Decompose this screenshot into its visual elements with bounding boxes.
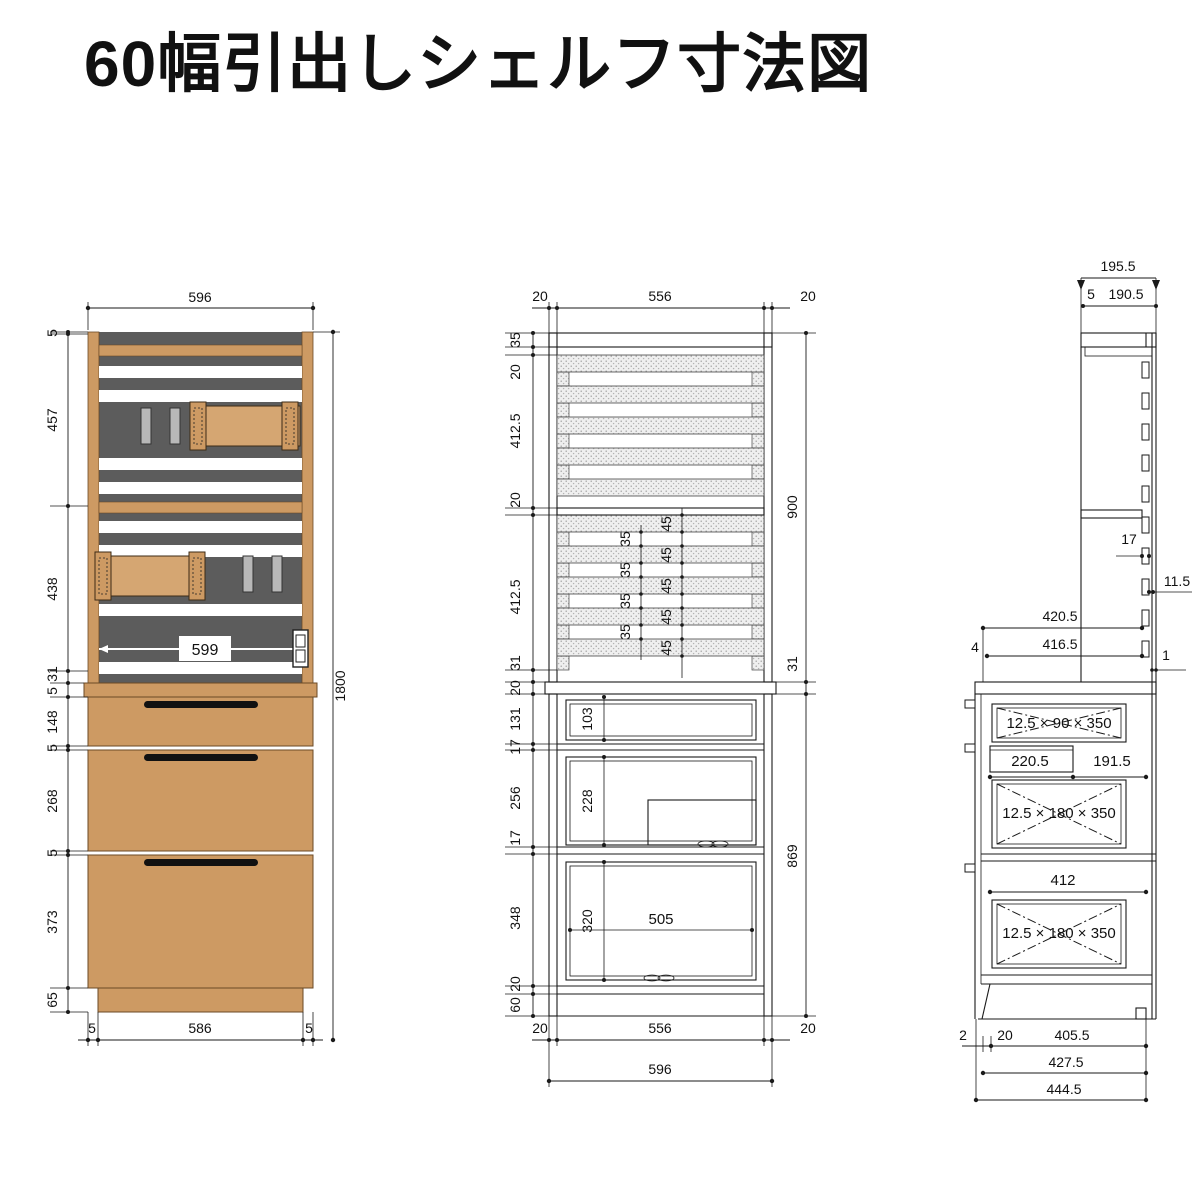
dim-drawer-internals: 103 228 320 505	[568, 695, 754, 982]
drawer-handle	[144, 701, 258, 708]
dim-label: 412.5	[507, 413, 523, 448]
dim-slat-thickness: 17 11.5	[1116, 531, 1192, 594]
dim-label: 869	[784, 844, 800, 868]
dim-label: 17	[1121, 531, 1137, 547]
dim-label: 45	[658, 640, 674, 656]
base-kick	[98, 988, 303, 1012]
dim-label: 148	[44, 710, 60, 734]
dim-label: 320	[579, 909, 595, 933]
dim-label: 20	[532, 288, 548, 304]
dim-label: 20	[800, 1020, 816, 1036]
drawer-cabinet	[84, 683, 317, 1012]
slat-panel: 599	[88, 332, 313, 683]
dim-label: 20	[532, 1020, 548, 1036]
dim-label: 35	[617, 531, 633, 547]
counter-side	[975, 682, 1156, 694]
dim-label: 35	[617, 562, 633, 578]
dim-label: 5	[88, 1020, 96, 1036]
dim-label: 35	[617, 593, 633, 609]
dim-upper-depth: 420.5 416.5 4 1	[971, 608, 1186, 682]
dim-label: 31	[784, 656, 800, 672]
dim-label: 438	[44, 577, 60, 601]
dim-label: 45	[658, 609, 674, 625]
dimension-diagram: 60幅引出しシェルフ寸法図 596	[0, 0, 1200, 1200]
dim-label: 191.5	[1093, 753, 1131, 770]
dim-label: 373	[44, 910, 60, 934]
dim-top-chain: 20 556 20	[532, 288, 816, 333]
dim-label: 5	[305, 1020, 313, 1036]
dim-label: 457	[44, 408, 60, 432]
board-label: 12.5 × 180 × 350	[1002, 805, 1115, 822]
dim-label: 65	[44, 992, 60, 1008]
dim-label: 5	[44, 849, 60, 857]
drawer-front-tabs	[965, 700, 975, 872]
dim-label: 35	[507, 332, 523, 348]
shelf-box-upper	[190, 402, 300, 450]
shelf-box-lower	[95, 552, 205, 600]
dim-label: 195.5	[1100, 258, 1135, 274]
dim-label: 45	[658, 547, 674, 563]
dim-label: 405.5	[1054, 1027, 1089, 1043]
dim-label: 11.5	[1164, 573, 1190, 589]
dim-label: 20	[997, 1027, 1013, 1043]
dim-label: 228	[579, 789, 595, 813]
dim-label: 45	[658, 516, 674, 532]
dim-front-right-chain: 900 31 869	[772, 331, 816, 1018]
mid-shelf	[1081, 510, 1142, 518]
dim-label: 900	[784, 495, 800, 519]
dim-label: 599	[192, 642, 219, 659]
dim-label: 5	[44, 744, 60, 752]
dim-label: 31	[44, 666, 60, 682]
dim-label: 444.5	[1046, 1081, 1081, 1097]
dim-label: 596	[648, 1061, 672, 1077]
dim-label: 60	[507, 997, 523, 1013]
dim-left-chain: 5 457 438 31 5 148 5 268 5 373 65	[44, 329, 88, 1014]
dim-label: 420.5	[1042, 608, 1077, 624]
dim-label: 4	[971, 639, 979, 655]
dim-label: 45	[658, 578, 674, 594]
drawer-handle	[144, 859, 258, 866]
drawer-handle	[144, 754, 258, 761]
dim-label: 256	[507, 786, 523, 810]
dim-label: 596	[188, 289, 212, 305]
dim-label: 2	[959, 1027, 967, 1043]
dim-label: 20	[507, 492, 523, 508]
dim-label: 20	[507, 364, 523, 380]
board-label: 12.5 × 90 × 350	[1006, 715, 1111, 732]
dim-label: 190.5	[1108, 286, 1143, 302]
side-line-view: 195.5 5 190.5 17 11.5 420.5 416.5 4 1	[959, 258, 1192, 1102]
dim-label: 505	[648, 911, 673, 928]
front-line-view: 20 556 20 35	[505, 288, 816, 1087]
dim-label: 416.5	[1042, 636, 1077, 652]
dim-label: 427.5	[1048, 1054, 1083, 1070]
dim-label: 103	[579, 707, 595, 731]
dim-label: 5	[1087, 286, 1095, 302]
dim-label: 412	[1050, 872, 1075, 889]
drawer-3	[88, 855, 313, 988]
dim-label: 556	[648, 288, 672, 304]
dim-total-height: 1800	[313, 330, 348, 1042]
dim-label: 1	[1162, 647, 1170, 663]
counter-board	[84, 683, 317, 697]
slat-cross-sections	[1142, 362, 1149, 657]
dim-label: 220.5	[1011, 753, 1049, 770]
rendered-front-view: 596	[44, 289, 348, 1046]
dim-front-bottom: 20 556 20 596	[532, 1016, 816, 1087]
dim-label: 35	[617, 624, 633, 640]
dim-label: 5	[44, 329, 60, 337]
dim-label: 5	[44, 687, 60, 695]
power-outlet	[293, 630, 308, 667]
dim-drawer-boards: 12.5 × 90 × 350 220.5 191.5 12.5 × 180 ×…	[988, 715, 1148, 942]
dim-label: 17	[507, 739, 523, 755]
dim-label: 20	[507, 680, 523, 696]
dim-label: 31	[507, 655, 523, 671]
dim-side-bottom: 2 20 405.5 427.5 444.5	[959, 1019, 1148, 1102]
dim-label: 412.5	[507, 579, 523, 614]
dim-label: 556	[648, 1020, 672, 1036]
dim-label: 20	[800, 288, 816, 304]
dim-label: 586	[188, 1020, 212, 1036]
drawer-2	[88, 750, 313, 851]
dim-side-top: 195.5 5 190.5	[1077, 258, 1160, 333]
dim-label: 348	[507, 906, 523, 930]
dim-label: 268	[44, 789, 60, 813]
dim-bottom-chain: 5 586 5	[78, 1012, 323, 1046]
dim-top-width: 596	[86, 289, 315, 330]
drawer-boxes	[566, 700, 756, 981]
rear-foot	[1136, 1008, 1146, 1019]
dim-label: 17	[507, 830, 523, 846]
side-structure	[965, 333, 1156, 1019]
board-label: 12.5 × 180 × 350	[1002, 925, 1115, 942]
page-title: 60幅引出しシェルフ寸法図	[84, 28, 872, 100]
dim-label: 20	[507, 976, 523, 992]
dim-label: 1800	[332, 670, 348, 701]
dim-label: 131	[507, 707, 523, 731]
